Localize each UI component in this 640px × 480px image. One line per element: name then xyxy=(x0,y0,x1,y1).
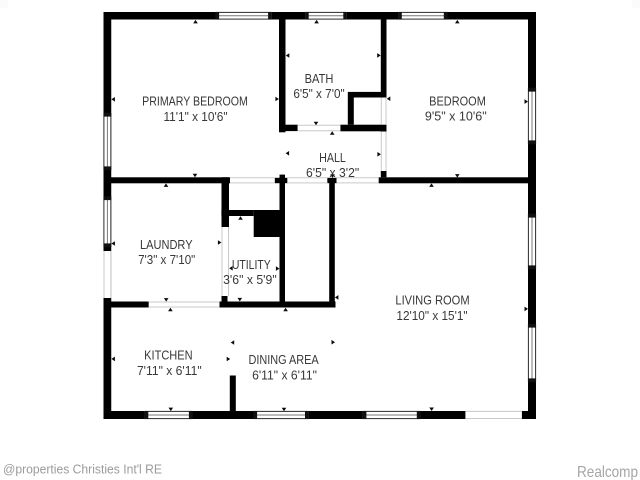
svg-text:12'10" x 15'1": 12'10" x 15'1" xyxy=(396,308,468,323)
svg-text:KITCHEN: KITCHEN xyxy=(144,348,193,363)
svg-text:BEDROOM: BEDROOM xyxy=(429,94,486,109)
svg-text:BATH: BATH xyxy=(305,71,334,86)
svg-text:11'1" x 10'6": 11'1" x 10'6" xyxy=(163,109,227,124)
svg-text:3'6" x 5'9": 3'6" x 5'9" xyxy=(223,272,277,287)
svg-text:9'5" x 10'6": 9'5" x 10'6" xyxy=(425,109,487,124)
svg-text:@properties Christies Int'l RE: @properties Christies Int'l RE xyxy=(3,462,162,477)
svg-text:HALL: HALL xyxy=(319,150,346,165)
svg-text:7'3" x 7'10": 7'3" x 7'10" xyxy=(138,252,196,267)
svg-text:Realcomp: Realcomp xyxy=(577,464,638,480)
svg-text:6'5" x 3'2": 6'5" x 3'2" xyxy=(306,165,359,180)
svg-text:DINING AREA: DINING AREA xyxy=(249,352,319,367)
svg-text:LAUNDRY: LAUNDRY xyxy=(140,237,193,252)
svg-text:LIVING ROOM: LIVING ROOM xyxy=(395,293,469,308)
svg-text:6'11" x 6'11": 6'11" x 6'11" xyxy=(252,367,317,382)
svg-text:6'5" x 7'0": 6'5" x 7'0" xyxy=(293,86,345,101)
svg-text:UTILITY: UTILITY xyxy=(232,257,271,272)
svg-text:7'11" x 6'11": 7'11" x 6'11" xyxy=(137,363,202,378)
svg-text:PRIMARY BEDROOM: PRIMARY BEDROOM xyxy=(142,94,248,109)
